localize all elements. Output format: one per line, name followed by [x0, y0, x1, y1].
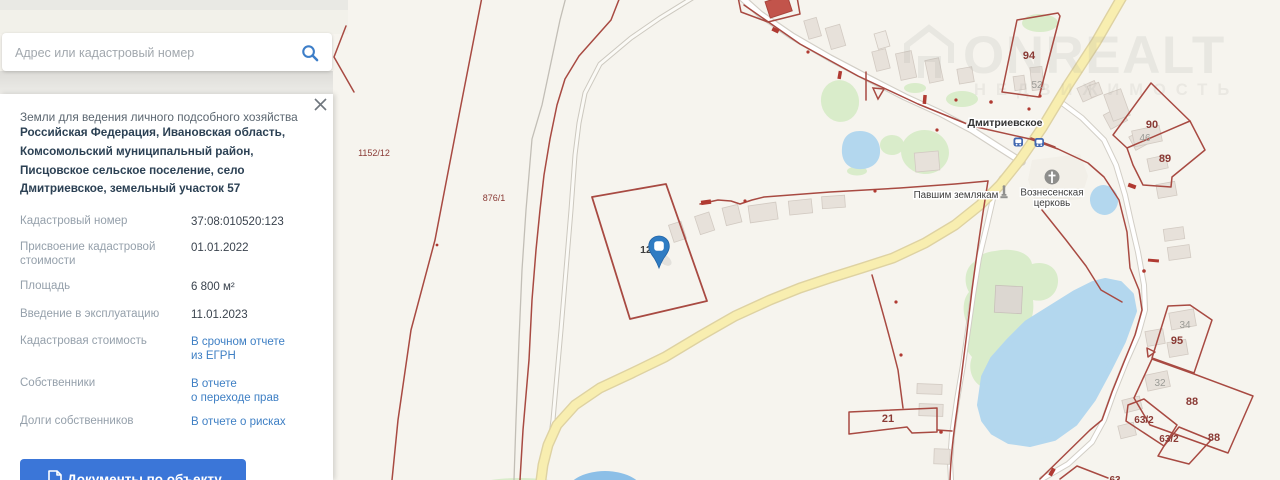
svg-text:88: 88	[1186, 396, 1198, 408]
svg-text:95: 95	[1171, 335, 1183, 347]
svg-text:Дмитриевское: Дмитриевское	[968, 117, 1043, 129]
svg-text:94: 94	[1023, 50, 1036, 62]
svg-text:ONREALT: ONREALT	[963, 26, 1226, 85]
svg-text:НЕДВИЖИМОСТЬ: НЕДВИЖИМОСТЬ	[974, 81, 1239, 99]
svg-text:90: 90	[1146, 119, 1158, 131]
svg-text:876/1: 876/1	[483, 193, 506, 203]
svg-text:89: 89	[1159, 153, 1171, 165]
svg-text:88: 88	[1208, 432, 1220, 444]
svg-text:21: 21	[882, 413, 894, 425]
svg-text:63/2: 63/2	[1134, 415, 1154, 426]
svg-text:1152/12: 1152/12	[358, 148, 390, 158]
svg-text:34: 34	[1179, 320, 1191, 331]
svg-text:церковь: церковь	[1034, 198, 1071, 209]
svg-text:52: 52	[1031, 80, 1043, 91]
svg-text:32: 32	[1154, 378, 1166, 389]
svg-text:Вознесенская: Вознесенская	[1020, 188, 1083, 199]
svg-text:46: 46	[1139, 133, 1151, 144]
svg-text:Павшим землякам: Павшим землякам	[914, 190, 999, 201]
svg-text:63: 63	[1109, 475, 1121, 480]
svg-text:63/2: 63/2	[1159, 434, 1179, 445]
